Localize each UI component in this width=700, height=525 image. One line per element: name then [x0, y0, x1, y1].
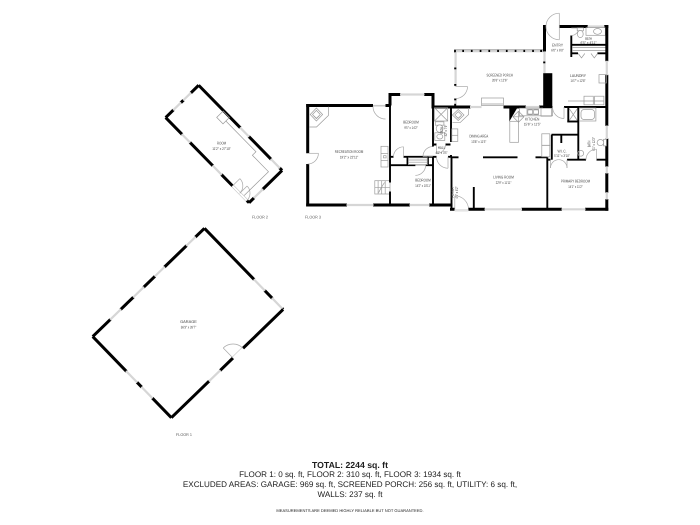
svg-text:15'6" x 11'5": 15'6" x 11'5" [524, 122, 542, 126]
svg-text:LIVING ROOM: LIVING ROOM [493, 174, 514, 179]
svg-text:FLOOR 2: FLOOR 2 [252, 214, 269, 219]
svg-text:19'2" x 22'11": 19'2" x 22'11" [340, 155, 359, 159]
svg-text:SCREENED PORCH: SCREENED PORCH [487, 72, 513, 77]
svg-text:PRIMARY BEDROOM: PRIMARY BEDROOM [561, 178, 590, 183]
svg-text:13'8" x 11'5": 13'8" x 11'5" [471, 140, 486, 144]
svg-text:4'6" x 3'5": 4'6" x 3'5" [436, 151, 448, 155]
svg-text:GARAGE: GARAGE [180, 319, 197, 324]
svg-text:FLOOR 3: FLOOR 3 [305, 215, 322, 220]
svg-text:HALL: HALL [438, 145, 446, 150]
svg-text:FLOOR 1: FLOOR 1 [176, 432, 193, 437]
svg-text:6'1" x 12'2": 6'1" x 12'2" [592, 137, 596, 151]
svg-text:9'5" x 14'2": 9'5" x 14'2" [404, 126, 418, 130]
svg-text:14'7" x 12'8": 14'7" x 12'8" [571, 79, 586, 83]
svg-text:ENTRY: ENTRY [552, 42, 563, 47]
svg-text:W.I.C.: W.I.C. [558, 148, 567, 153]
svg-text:42" x 7'9": 42" x 7'9" [444, 124, 448, 136]
svg-text:ROOM: ROOM [217, 140, 226, 145]
svg-text:20'6" x 12'6": 20'6" x 12'6" [492, 79, 508, 83]
svg-text:11'2" x 27'10": 11'2" x 27'10" [212, 147, 231, 151]
svg-text:DINING AREA: DINING AREA [469, 134, 488, 139]
svg-text:KITCHEN: KITCHEN [525, 117, 539, 122]
svg-text:BEDROOM: BEDROOM [415, 178, 431, 183]
svg-text:14'2" x 10'11": 14'2" x 10'11" [415, 184, 431, 188]
svg-text:5'11" x 3'10": 5'11" x 3'10" [554, 154, 570, 158]
svg-text:36'3" x 26'7": 36'3" x 26'7" [181, 325, 197, 329]
svg-text:14'1" x 11'2": 14'1" x 11'2" [568, 185, 583, 189]
svg-text:LAUNDRY: LAUNDRY [570, 73, 586, 78]
svg-text:22'9" x 11'11": 22'9" x 11'11" [496, 181, 512, 185]
svg-text:6'0" x 6'0": 6'0" x 6'0" [551, 48, 564, 52]
svg-text:RECREATION ROOM: RECREATION ROOM [335, 149, 364, 154]
svg-text:BATH: BATH [587, 141, 592, 148]
svg-text:BEDROOM: BEDROOM [403, 120, 419, 125]
